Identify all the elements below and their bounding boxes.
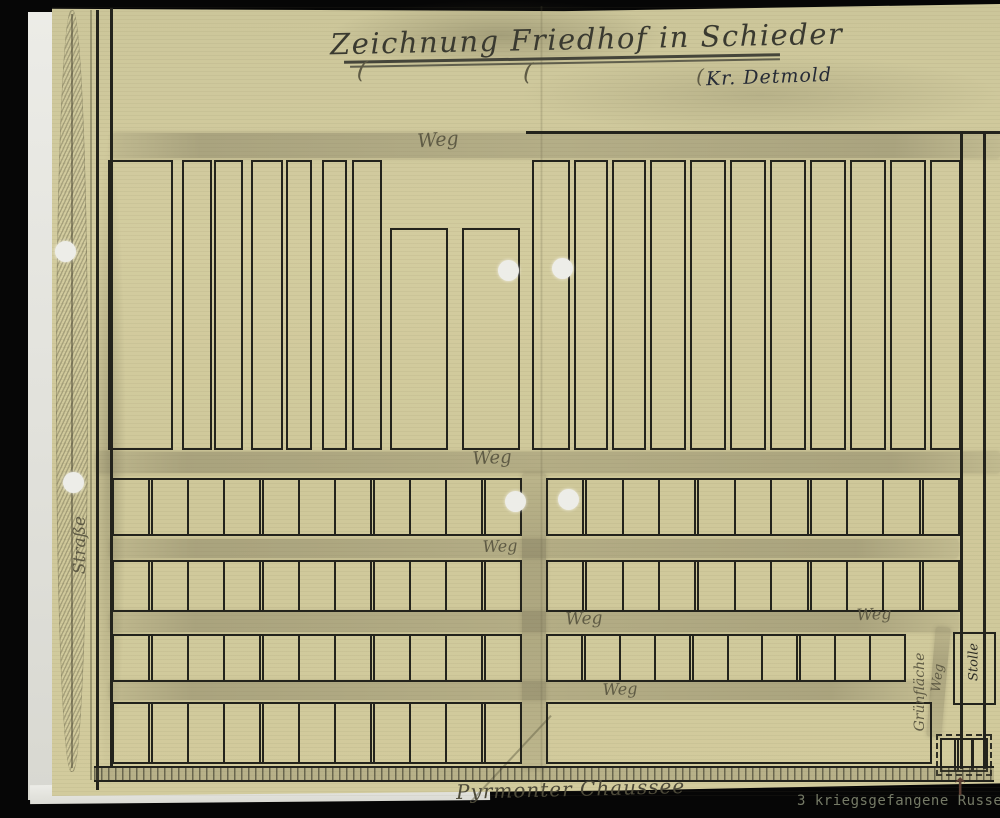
grave-cell	[481, 636, 520, 680]
grave-row-segment	[112, 478, 522, 536]
grave-cell	[259, 562, 298, 610]
grave-cell	[187, 704, 223, 762]
grave-cell	[409, 562, 445, 610]
grave-cell	[445, 704, 481, 762]
hole-punch-dot	[552, 258, 573, 279]
burial-strip	[322, 160, 347, 450]
grave-cell	[882, 480, 918, 534]
grave-row-segment	[546, 478, 960, 536]
burial-strip	[286, 160, 312, 450]
weg-path-band	[110, 681, 930, 700]
grave-cell	[334, 480, 370, 534]
strasse-label: Straße	[70, 516, 90, 574]
grave-cell	[114, 480, 148, 534]
grave-cell	[807, 480, 846, 534]
grave-cell	[734, 562, 770, 610]
burial-strip	[390, 228, 448, 450]
grave-cell	[445, 480, 481, 534]
grave-cell	[654, 636, 689, 680]
weg-path-band	[112, 133, 1000, 158]
tree-row-spine	[71, 14, 73, 768]
grave-cell	[148, 636, 187, 680]
grave-row-segment	[112, 702, 522, 764]
grave-cell	[622, 562, 658, 610]
hole-punch-dot	[498, 260, 519, 281]
burial-strip	[890, 160, 926, 450]
burial-strip	[108, 160, 173, 450]
burial-strip	[770, 160, 806, 450]
gruenflaeche-label: Grünfläche	[912, 653, 928, 732]
hole-punch-dot	[505, 491, 526, 512]
hole-punch-dot	[63, 472, 84, 493]
grave-cell	[770, 562, 806, 610]
grave-cell	[148, 704, 187, 762]
grave-cell	[259, 704, 298, 762]
grave-cell	[259, 636, 298, 680]
grave-cell	[409, 704, 445, 762]
hole-punch-dot	[558, 489, 579, 510]
grave-cell	[919, 480, 958, 534]
grave-cell	[727, 636, 762, 680]
grave-cell	[298, 480, 334, 534]
plan-border-line	[96, 10, 99, 790]
grave-row-segment	[112, 634, 522, 682]
grave-cell	[761, 636, 796, 680]
weg-label: Weg	[856, 604, 892, 625]
grave-cell	[223, 636, 259, 680]
grave-cell	[370, 480, 409, 534]
grave-cell	[223, 562, 259, 610]
burial-strip	[612, 160, 646, 450]
scanned-cemetery-plan: Zeichnung Friedhof in Schieder Kr. Detmo…	[0, 0, 1000, 818]
grave-cell	[619, 636, 654, 680]
grave-cell	[770, 480, 806, 534]
grave-cell	[334, 704, 370, 762]
burial-strip	[574, 160, 608, 450]
pencil-line	[90, 10, 92, 780]
grave-row-segment	[546, 560, 960, 612]
grave-cell	[370, 562, 409, 610]
grave-cell	[259, 480, 298, 534]
burial-strip	[930, 160, 961, 450]
grave-cell	[582, 480, 621, 534]
grave-cell	[298, 636, 334, 680]
grave-cell	[148, 562, 187, 610]
grave-cell	[548, 562, 582, 610]
grave-row-segment	[546, 634, 906, 682]
burial-strip	[730, 160, 766, 450]
stolle-label: Stolle	[967, 643, 982, 681]
grave-cell	[370, 704, 409, 762]
weg-label: Weg	[482, 536, 518, 556]
weg-label: Weg	[417, 128, 460, 153]
grave-cell	[694, 562, 733, 610]
grave-cell	[548, 704, 930, 762]
grave-cell	[694, 480, 733, 534]
grave-row-segment	[112, 560, 522, 612]
grave-cell	[298, 562, 334, 610]
grave-cell	[582, 562, 621, 610]
grave-cell	[114, 636, 148, 680]
grave-cell	[187, 636, 223, 680]
grave-cell	[846, 480, 882, 534]
grave-cell	[445, 636, 481, 680]
burial-strip	[690, 160, 726, 450]
plan-border-line	[526, 131, 1000, 134]
grave-cell	[689, 636, 727, 680]
grave-cell	[622, 480, 658, 534]
arrow-annotation: ↑	[950, 772, 970, 801]
weg-label: Weg	[565, 608, 603, 629]
grave-cell	[409, 480, 445, 534]
flourish-label: (	[522, 58, 533, 87]
grave-cell	[658, 562, 694, 610]
grave-row-segment	[546, 702, 932, 764]
grave-cell	[114, 704, 148, 762]
hole-punch-dot	[55, 241, 76, 262]
weg-path-band	[96, 452, 1000, 473]
grave-cell	[334, 562, 370, 610]
grave-cell	[796, 636, 834, 680]
grave-cell	[834, 636, 869, 680]
grave-cell	[114, 562, 148, 610]
burial-strip	[251, 160, 283, 450]
grave-cell	[370, 636, 409, 680]
burial-strip	[182, 160, 212, 450]
grave-cell	[658, 480, 694, 534]
burial-strip	[650, 160, 686, 450]
grave-cell	[334, 636, 370, 680]
plan-border-line	[983, 133, 986, 769]
grave-cell	[481, 562, 520, 610]
grave-cell	[734, 480, 770, 534]
grave-cell	[223, 704, 259, 762]
grave-cell	[869, 636, 904, 680]
burial-strip	[532, 160, 570, 450]
grave-cell	[846, 562, 882, 610]
grave-cell	[445, 562, 481, 610]
weg-path-band	[522, 473, 546, 769]
grave-cell	[223, 480, 259, 534]
grave-cell	[409, 636, 445, 680]
grave-cell	[548, 636, 581, 680]
weg-label: Weg	[602, 679, 638, 699]
flourish-label: (	[696, 64, 704, 88]
burial-strip	[810, 160, 846, 450]
district-label: Kr. Detmold	[706, 64, 833, 90]
grave-cell	[581, 636, 619, 680]
burial-strip	[352, 160, 382, 450]
grave-cell	[807, 562, 846, 610]
grave-cell	[919, 562, 958, 610]
grave-cell	[187, 562, 223, 610]
weg-label: Weg	[472, 446, 512, 469]
grave-cell	[298, 704, 334, 762]
burial-strip	[214, 160, 243, 450]
grave-cell	[481, 704, 520, 762]
burial-strip	[850, 160, 886, 450]
grave-cell	[148, 480, 187, 534]
grave-cell	[187, 480, 223, 534]
